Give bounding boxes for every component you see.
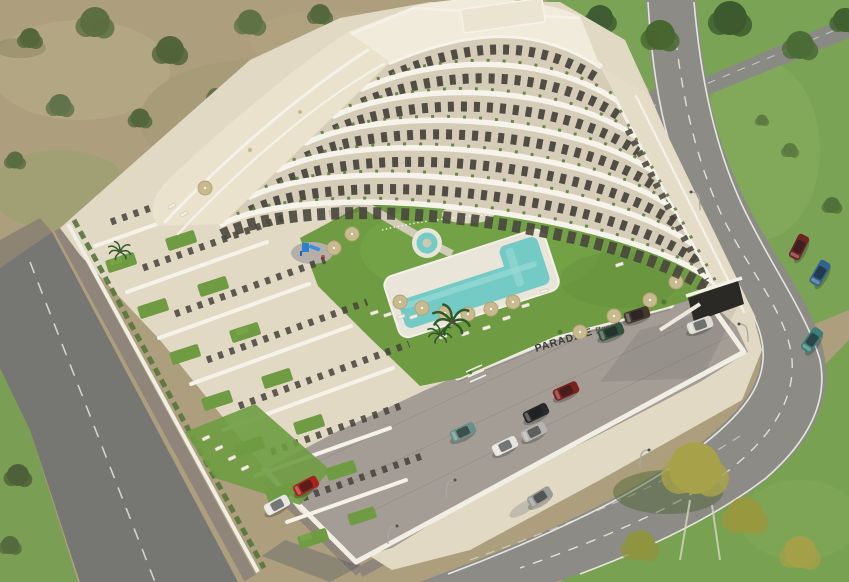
umbrella (484, 302, 498, 316)
umbrella (607, 309, 621, 323)
umbrella (643, 293, 657, 307)
playground (291, 242, 333, 264)
umbrella (506, 295, 520, 309)
umbrella (327, 241, 341, 255)
umbrella (345, 227, 359, 241)
umbrella (573, 325, 587, 339)
aerial-render: PARADISEResort (0, 0, 849, 582)
umbrella (415, 301, 429, 315)
umbrella (393, 295, 407, 309)
kids-pool (412, 228, 442, 258)
scene-canvas: PARADISEResort (0, 0, 849, 582)
